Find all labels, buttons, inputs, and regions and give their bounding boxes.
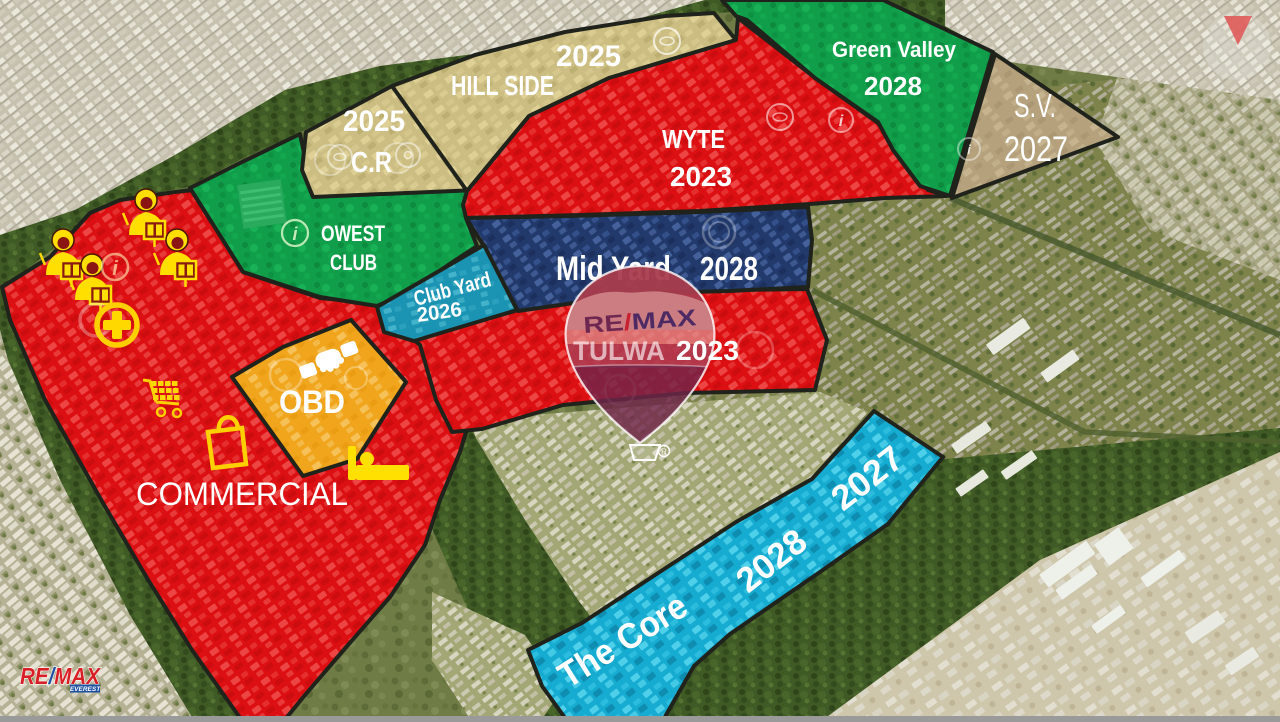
svg-text:C.R: C.R	[351, 147, 392, 179]
svg-text:i: i	[967, 142, 971, 157]
svg-text:2028: 2028	[700, 250, 758, 287]
svg-text:S.V.: S.V.	[1014, 87, 1056, 124]
svg-text:2023: 2023	[676, 335, 739, 366]
svg-text:EVEREST: EVEREST	[70, 686, 101, 693]
svg-text:OWEST: OWEST	[321, 221, 385, 246]
svg-text:R: R	[661, 448, 667, 457]
svg-text:Green Valley: Green Valley	[832, 37, 957, 62]
svg-text:2028: 2028	[864, 71, 922, 101]
svg-text:2023: 2023	[670, 161, 732, 192]
svg-text:i: i	[112, 258, 118, 280]
svg-text:HILL SIDE: HILL SIDE	[451, 70, 554, 101]
svg-text:i: i	[839, 113, 844, 130]
svg-text:CLUB: CLUB	[330, 250, 377, 275]
svg-text:2025: 2025	[556, 40, 621, 73]
svg-text:COMMERCIAL: COMMERCIAL	[136, 476, 348, 512]
svg-text:OBD: OBD	[279, 384, 345, 420]
svg-text:TULWA: TULWA	[573, 336, 665, 366]
svg-text:2025: 2025	[343, 105, 405, 138]
svg-text:2027: 2027	[1004, 130, 1068, 169]
svg-text:WYTE: WYTE	[662, 124, 725, 154]
